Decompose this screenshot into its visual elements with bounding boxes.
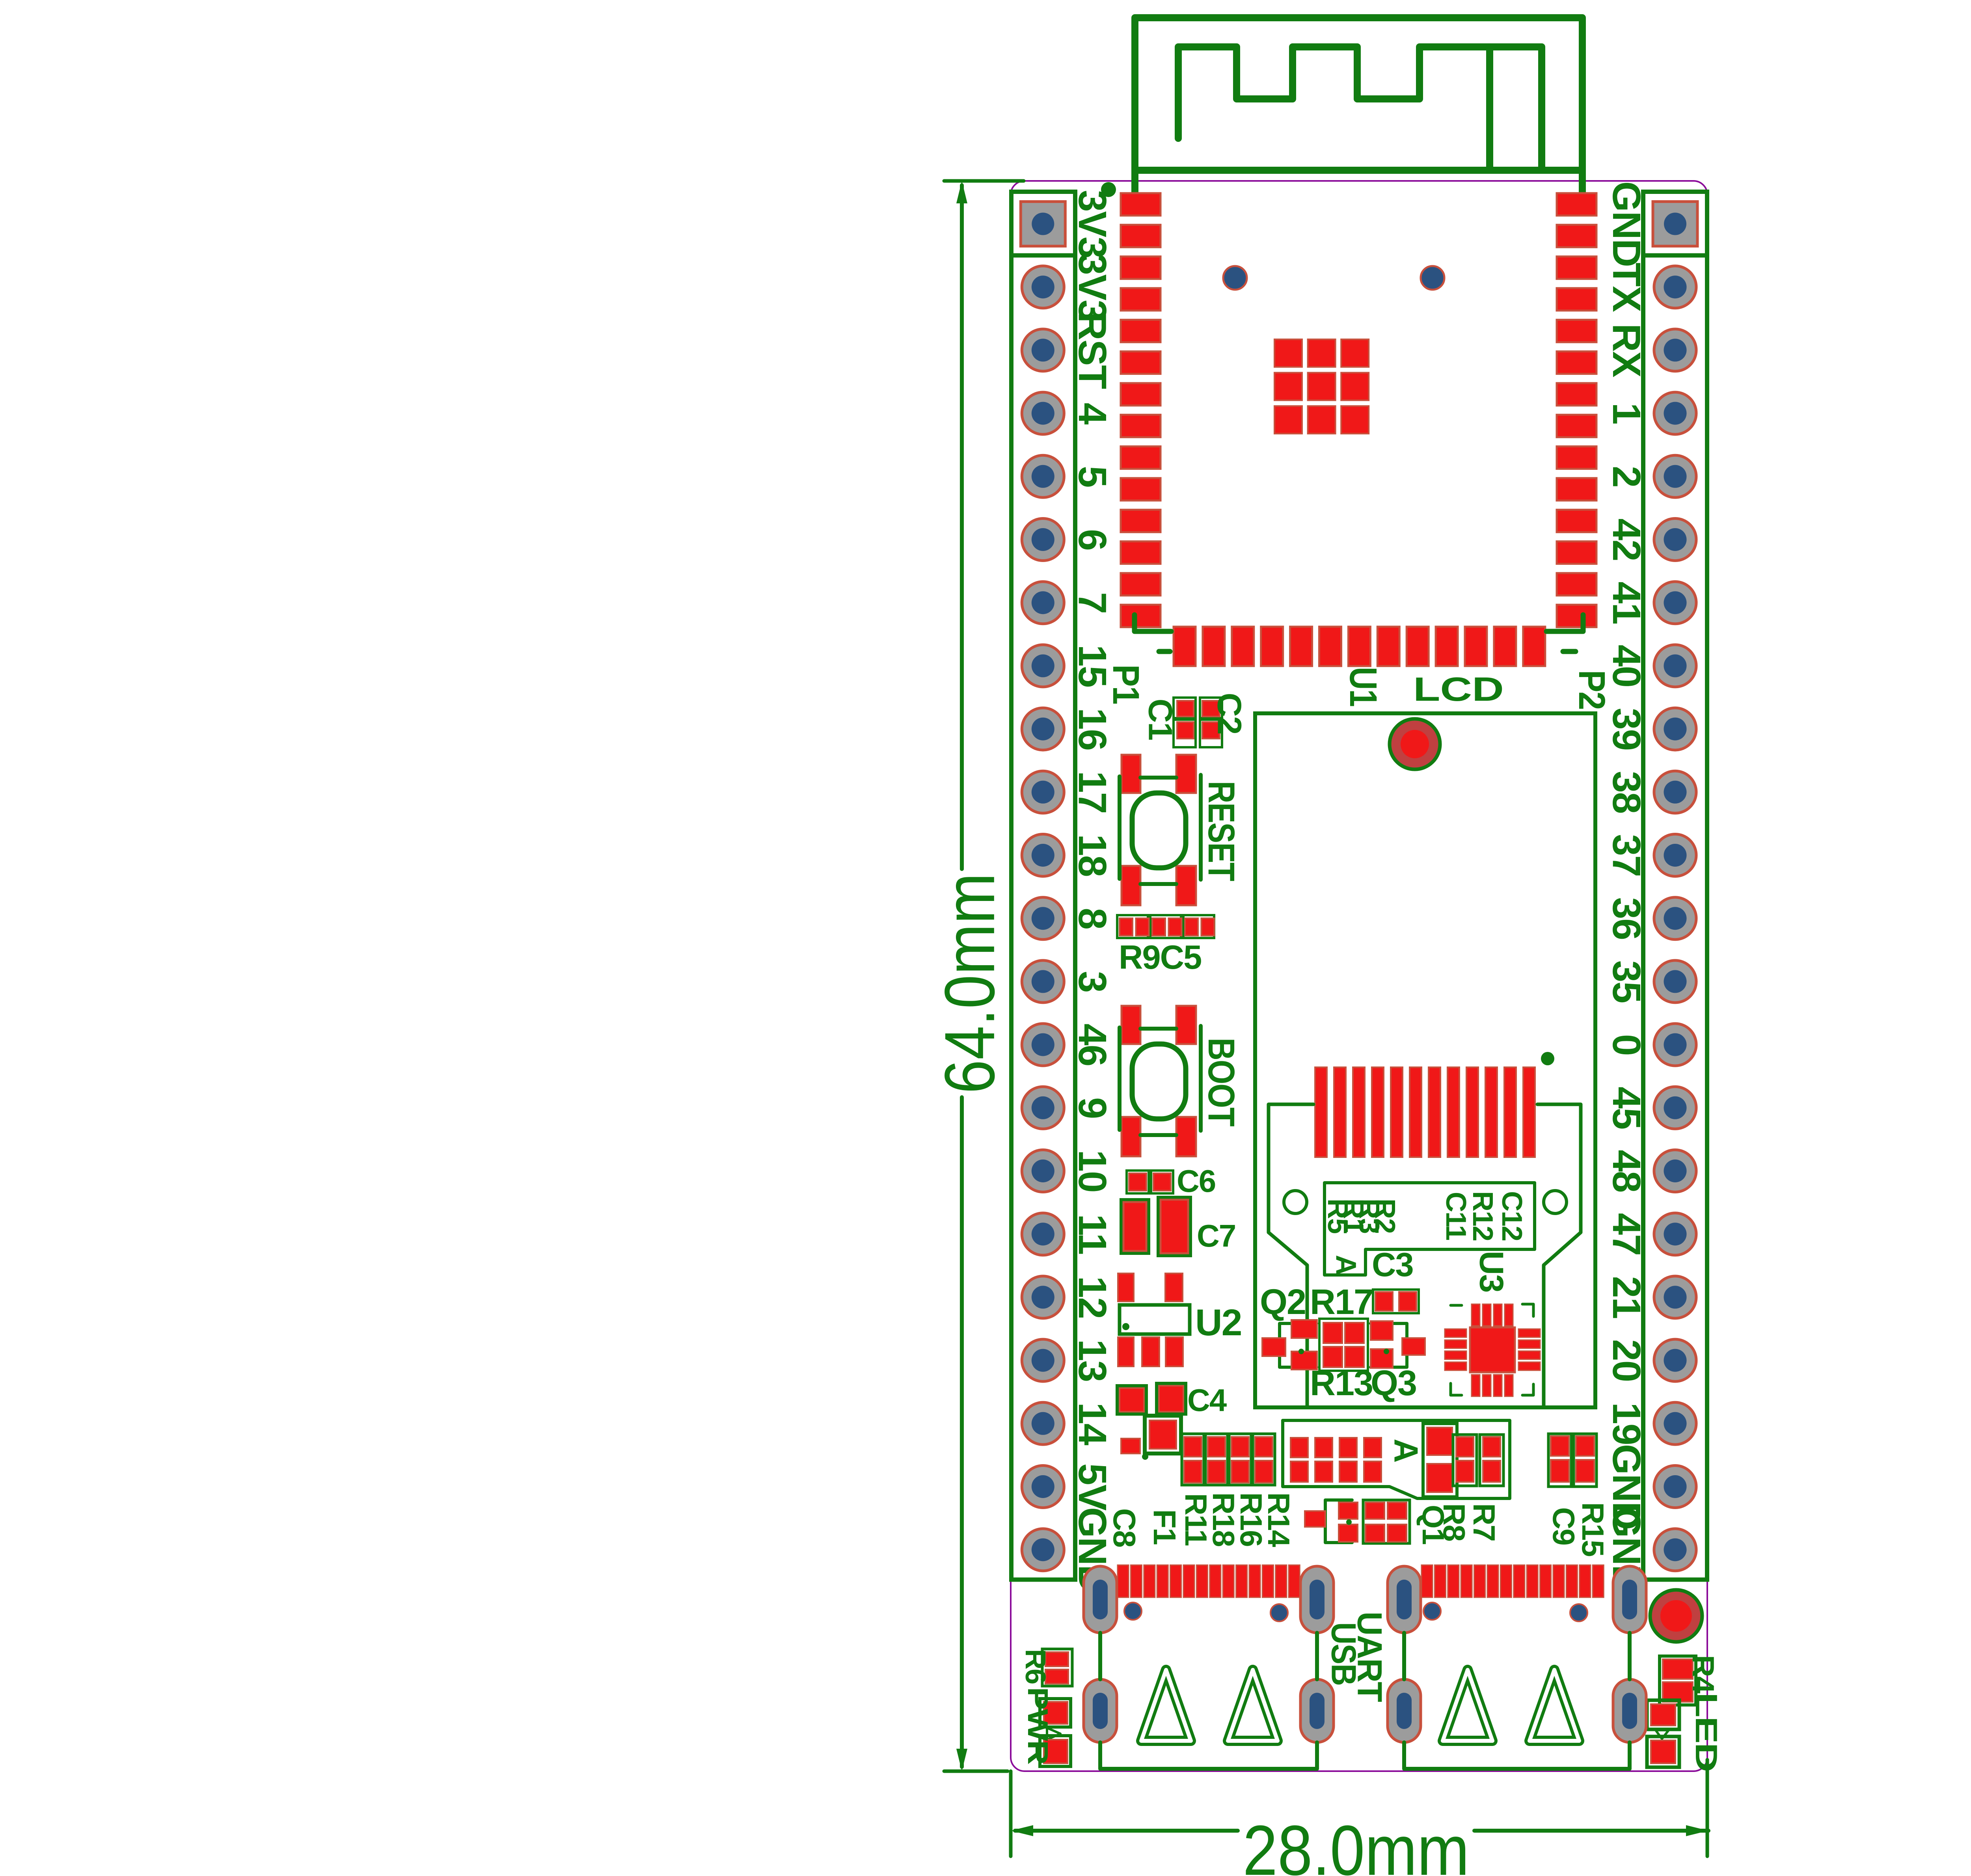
svg-text:36: 36 [1604, 897, 1649, 940]
svg-text:4: 4 [1070, 403, 1114, 425]
svg-text:17: 17 [1070, 771, 1114, 813]
svg-text:13: 13 [1070, 1339, 1114, 1381]
svg-text:R17: R17 [1310, 1282, 1373, 1322]
svg-text:41: 41 [1604, 582, 1649, 624]
svg-text:3: 3 [1070, 971, 1114, 992]
svg-text:2: 2 [1604, 466, 1649, 487]
svg-text:U3: U3 [1472, 1251, 1510, 1292]
svg-text:RST: RST [1070, 312, 1114, 389]
svg-text:11: 11 [1070, 1214, 1114, 1254]
svg-text:P2: P2 [1571, 670, 1613, 709]
svg-text:RESET: RESET [1200, 781, 1242, 882]
svg-text:21: 21 [1604, 1276, 1649, 1318]
svg-text:39: 39 [1604, 708, 1649, 750]
svg-text:64.0mm: 64.0mm [930, 873, 1010, 1094]
svg-text:C3: C3 [1372, 1246, 1413, 1284]
svg-text:A: A [1387, 1439, 1424, 1462]
svg-text:48: 48 [1604, 1150, 1649, 1192]
svg-text:C1: C1 [1141, 699, 1179, 740]
svg-text:TX: TX [1604, 262, 1649, 312]
svg-text:7: 7 [1070, 592, 1114, 613]
svg-text:R15: R15 [1576, 1502, 1610, 1556]
svg-text:19: 19 [1604, 1402, 1649, 1444]
svg-text:PWR: PWR [1022, 1687, 1053, 1764]
svg-text:37: 37 [1604, 834, 1649, 876]
svg-text:P1: P1 [1105, 664, 1147, 704]
svg-text:R7: R7 [1467, 1503, 1502, 1541]
svg-text:R4: R4 [1686, 1655, 1721, 1693]
svg-text:20: 20 [1604, 1339, 1649, 1381]
svg-text:47: 47 [1604, 1213, 1649, 1255]
svg-text:C2: C2 [1210, 693, 1248, 734]
svg-text:3V3: 3V3 [1070, 190, 1114, 258]
svg-text:GND: GND [1604, 181, 1649, 266]
svg-text:5: 5 [1070, 466, 1114, 487]
svg-text:BOOT: BOOT [1200, 1038, 1242, 1127]
svg-text:RX: RX [1604, 324, 1649, 377]
svg-text:3V3: 3V3 [1070, 253, 1114, 321]
svg-text:6: 6 [1070, 529, 1114, 550]
svg-text:9: 9 [1070, 1097, 1114, 1119]
svg-text:C6: C6 [1177, 1163, 1215, 1199]
svg-text:0: 0 [1604, 1034, 1649, 1055]
svg-text:R2: R2 [1369, 1199, 1401, 1233]
svg-text:28.0mm: 28.0mm [1243, 1811, 1470, 1876]
svg-text:Q2: Q2 [1260, 1282, 1306, 1322]
svg-text:C12: C12 [1496, 1191, 1528, 1241]
svg-text:14: 14 [1070, 1402, 1114, 1446]
svg-text:16: 16 [1070, 708, 1114, 750]
svg-text:U2: U2 [1195, 1302, 1241, 1344]
svg-text:C7: C7 [1197, 1218, 1235, 1253]
svg-text:LCD: LCD [1413, 671, 1504, 708]
svg-text:R6: R6 [1019, 1649, 1051, 1684]
svg-text:R14: R14 [1261, 1492, 1296, 1547]
svg-text:F1: F1 [1147, 1509, 1182, 1545]
svg-text:10: 10 [1070, 1150, 1114, 1192]
svg-text:12: 12 [1070, 1276, 1114, 1318]
svg-text:1: 1 [1604, 403, 1649, 424]
svg-text:46: 46 [1070, 1024, 1114, 1066]
svg-text:A: A [1330, 1255, 1362, 1275]
svg-text:18: 18 [1070, 834, 1114, 876]
svg-text:Q3: Q3 [1371, 1364, 1416, 1403]
svg-text:C11: C11 [1440, 1192, 1472, 1240]
svg-text:C8: C8 [1107, 1508, 1142, 1547]
svg-text:LED: LED [1689, 1692, 1724, 1771]
svg-text:45: 45 [1604, 1087, 1649, 1129]
svg-text:38: 38 [1604, 771, 1649, 813]
svg-text:R8: R8 [1437, 1503, 1472, 1541]
svg-text:35: 35 [1604, 960, 1649, 1003]
svg-text:42: 42 [1604, 518, 1649, 560]
svg-text:C4: C4 [1187, 1383, 1227, 1418]
svg-text:8: 8 [1070, 908, 1114, 929]
svg-text:R9C5: R9C5 [1119, 939, 1201, 976]
svg-text:R12: R12 [1467, 1191, 1498, 1241]
svg-text:U1: U1 [1342, 667, 1385, 706]
svg-text:5V: 5V [1070, 1463, 1114, 1511]
svg-text:USB: USB [1324, 1622, 1363, 1685]
